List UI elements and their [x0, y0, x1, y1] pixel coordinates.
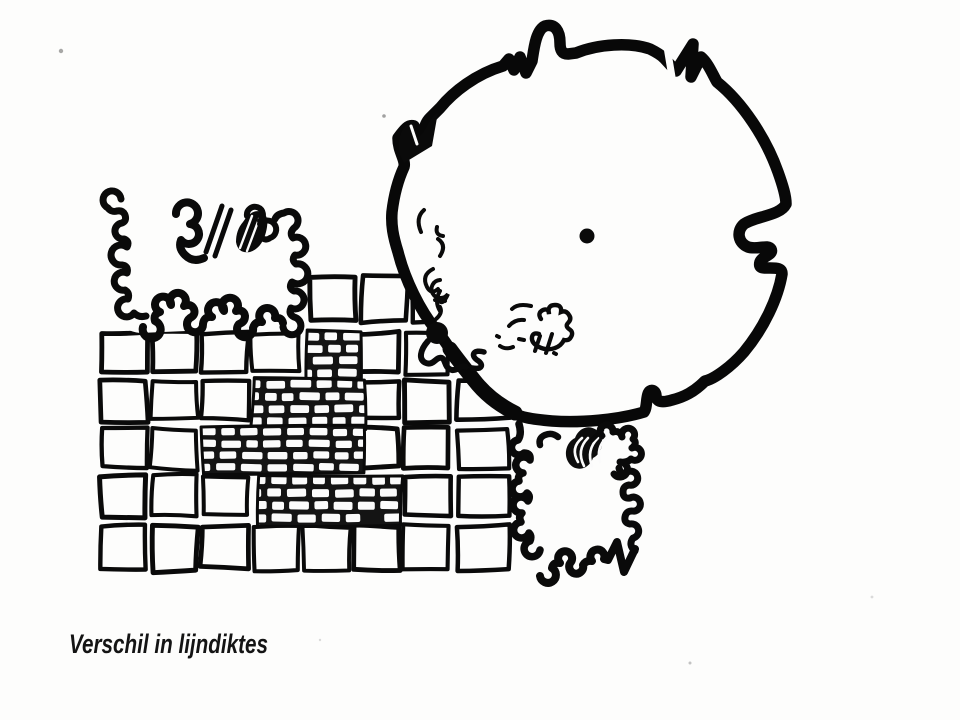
svg-text:Verschil in lijndiktes: Verschil in lijndiktes [69, 629, 268, 659]
